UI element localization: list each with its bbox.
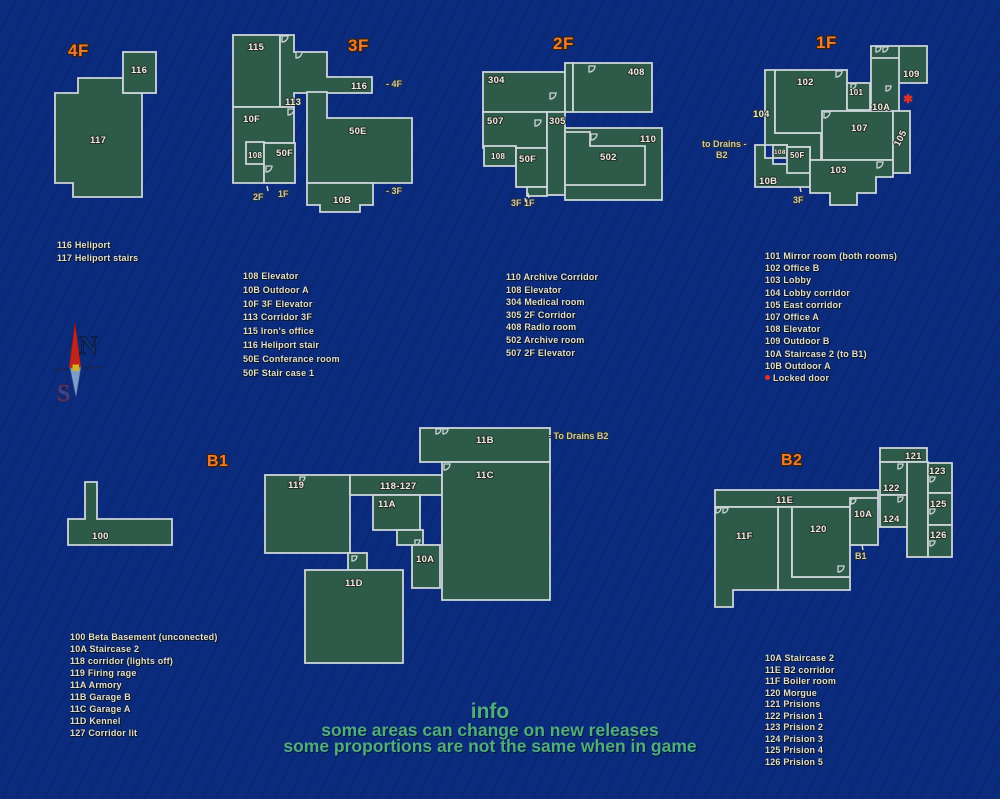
legend-item: 101 Mirror room (both rooms) (765, 250, 897, 262)
room-label: 118-127 (380, 481, 416, 492)
room-label: 107 (851, 123, 868, 134)
room-label: 116 (351, 81, 367, 92)
room-label: 125 (930, 499, 947, 510)
legend-item: 124 Prision 3 (765, 734, 836, 746)
legend-item: 10B Outdoor A (243, 284, 340, 298)
legend-item: 126 Prision 5 (765, 757, 836, 769)
legend-item: 116 Heliport stair (243, 339, 340, 353)
room-label: 502 (600, 152, 617, 163)
room-label: 126 (930, 530, 947, 541)
map-canvas: 4F 116 117 3F 115 113 116 10F 108 50F 50… (0, 0, 1000, 799)
legend-4f: 116 Heliport 117 Heliport stairs (57, 239, 138, 265)
room-label: 10A (416, 554, 434, 565)
room-2f-exit-step (527, 187, 547, 196)
floor-b1: B1 100 119 118-127 11A 10A 11D 11B 11C -… (68, 428, 608, 663)
floor-title-b1: B1 (207, 453, 228, 470)
annotation-exit-2f: 3F 1F (511, 198, 535, 208)
room-label: 10B (333, 195, 351, 206)
legend-item: 123 Prision 2 (765, 722, 836, 734)
room-b1-10a (412, 545, 440, 588)
room-b1-100 (68, 482, 172, 545)
legend-item: 118 corridor (lights off) (70, 655, 218, 667)
annotation-drains-1: to Drains - (702, 139, 747, 149)
legend-item: 50E Conferance room (243, 353, 340, 367)
compass-rose: N S (53, 322, 102, 407)
room-label: 11D (345, 578, 363, 589)
annotation-to-drains-b2: - To Drains B2 (548, 431, 608, 441)
legend-3f: 108 Elevator 10B Outdoor A 10F 3F Elevat… (243, 270, 340, 380)
legend-item: 502 Archive room (506, 334, 598, 347)
floor-title-b2: B2 (781, 452, 802, 469)
legend-item: 305 2F Corridor (506, 309, 598, 322)
room-label: 110 (640, 134, 656, 145)
room-label: 108 (774, 149, 786, 156)
legend-item: 117 Heliport stairs (57, 252, 138, 265)
legend-b2: 10A Staircase 2 11E B2 corridor 11F Boil… (765, 653, 836, 768)
legend-item: 10A Staircase 2 (765, 653, 836, 665)
legend-item: 11E B2 corridor (765, 665, 836, 677)
room-label: 113 (285, 97, 301, 108)
annotation-exit-2f: 2F (253, 192, 264, 202)
room-3f-50e (307, 92, 412, 183)
legend-item: 103 Lobby (765, 274, 897, 286)
locked-door-dot (765, 375, 770, 380)
room-b2-cell-corridor (907, 462, 928, 557)
legend-item-locked: Locked door (765, 372, 897, 384)
info-block: info some areas can change on new releas… (210, 701, 770, 754)
room-label: 102 (797, 77, 814, 88)
room-label: 108 (491, 152, 505, 161)
legend-item: 125 Prision 4 (765, 745, 836, 757)
room-label: 123 (929, 466, 946, 477)
legend-item: 11B Garage B (70, 691, 218, 703)
floor-title-1f: 1F (816, 33, 837, 52)
annotation-exit-3f: 3F (793, 195, 804, 205)
room-label: 120 (810, 524, 827, 535)
legend-2f: 110 Archive Corridor 108 Elevator 304 Me… (506, 271, 598, 359)
room-b1-119 (265, 475, 350, 553)
legend-item: 10A Staircase 2 (to B1) (765, 348, 897, 360)
legend-item: 11A Armory (70, 679, 218, 691)
annotation-to-4f: - 4F (386, 79, 403, 89)
floor-b2: B2 11E 11F 120 10A 121 122 124 123 125 1… (715, 448, 952, 607)
legend-1f: 101 Mirror room (both rooms) 102 Office … (765, 250, 897, 384)
legend-item: 108 Elevator (243, 270, 340, 284)
room-label: 119 (288, 480, 304, 491)
room-label: 116 (131, 65, 147, 76)
room-label: 101 (849, 88, 863, 97)
room-label: 10B (759, 176, 777, 187)
room-label: 50F (276, 148, 293, 159)
legend-item: 108 Elevator (765, 323, 897, 335)
room-label: 11C (476, 470, 494, 481)
compass-letter-n: N (79, 331, 98, 360)
room-label: 104 (753, 109, 770, 120)
room-label: 50E (349, 126, 367, 137)
room-label: 10F (243, 114, 260, 125)
room-label: 50F (519, 154, 536, 165)
annotation-exit-1f: 1F (278, 189, 289, 199)
room-label: 10A (872, 102, 890, 113)
floor-2f: 2F 304 408 507 305 108 50F 502 110 3F 1F (483, 34, 662, 208)
room-1f-107 (822, 111, 893, 160)
legend-item: 122 Prision 1 (765, 711, 836, 723)
legend-item: 11C Garage A (70, 703, 218, 715)
room-label: 115 (248, 42, 265, 53)
legend-item: 100 Beta Basement (unconected) (70, 631, 218, 643)
legend-item: 109 Outdoor B (765, 335, 897, 347)
legend-item: 107 Office A (765, 311, 897, 323)
room-label: 124 (883, 514, 900, 525)
legend-item: 11D Kennel (70, 715, 218, 727)
room-label: 117 (90, 135, 106, 146)
annotation-to-3f: - 3F (386, 186, 403, 196)
annotation-exit-b1: B1 (855, 551, 867, 561)
legend-b1: 100 Beta Basement (unconected) 10A Stair… (70, 631, 218, 739)
legend-item: 120 Morgue (765, 688, 836, 700)
room-label: 408 (628, 67, 645, 78)
room-label: 11F (736, 531, 753, 542)
legend-item: 10F 3F Elevator (243, 298, 340, 312)
floor-1f: 1F 104 102 101 109 10A 107 105 103 108 5… (702, 33, 927, 205)
legend-item: 121 Prisions (765, 699, 836, 711)
legend-item: 408 Radio room (506, 321, 598, 334)
floor-title-2f: 2F (553, 34, 574, 53)
legend-item: 11F Boiler room (765, 676, 836, 688)
locked-door-label: Locked door (773, 373, 829, 383)
legend-item: 50F Stair case 1 (243, 367, 340, 381)
room-label: 121 (905, 451, 922, 462)
room-2f-305-neck (565, 63, 573, 112)
room-label: 100 (92, 531, 109, 542)
legend-item: 116 Heliport (57, 239, 138, 252)
legend-item: 110 Archive Corridor (506, 271, 598, 284)
legend-item: 113 Corridor 3F (243, 311, 340, 325)
legend-item: 108 Elevator (506, 284, 598, 297)
legend-item: 507 2F Elevator (506, 347, 598, 360)
room-label: 50F (790, 151, 805, 160)
legend-item: 102 Office B (765, 262, 897, 274)
room-label: 109 (903, 69, 920, 80)
info-line-2: some proportions are not the same when i… (210, 739, 770, 755)
room-b2-10a (850, 498, 878, 545)
annotation-drains-2: B2 (716, 150, 728, 160)
floor-title-4f: 4F (68, 41, 89, 60)
room-label: 304 (488, 75, 505, 86)
legend-item: 119 Firing rage (70, 667, 218, 679)
room-label: 10A (854, 509, 872, 520)
compass-center (73, 365, 80, 372)
room-label: 11A (378, 499, 396, 510)
locked-door-marker: ✱ (903, 92, 913, 106)
legend-item: 105 East corridor (765, 299, 897, 311)
legend-item: 304 Medical room (506, 296, 598, 309)
room-label: 11B (476, 435, 494, 446)
floor-4f: 4F 116 117 (55, 41, 156, 197)
legend-item: 10A Staircase 2 (70, 643, 218, 655)
legend-item: 104 Lobby corridor (765, 287, 897, 299)
room-label: 305 (549, 116, 566, 127)
compass-letter-s: S (57, 381, 70, 407)
room-b2-11f (715, 507, 778, 607)
floor-3f: 3F 115 113 116 10F 108 50F 50E 10B - 4F … (233, 35, 412, 212)
room-label: 103 (830, 165, 847, 176)
legend-item: 127 Corridor lit (70, 727, 218, 739)
compass-needle-south (70, 367, 81, 397)
room-label: 11E (776, 495, 793, 506)
room-label: 108 (248, 151, 262, 160)
legend-item: 10B Outdoor A (765, 360, 897, 372)
room-b1-11c (442, 462, 550, 600)
floor-title-3f: 3F (348, 36, 369, 55)
room-label: 122 (883, 483, 900, 494)
legend-item: 115 Iron's office (243, 325, 340, 339)
room-label: 507 (487, 116, 504, 127)
